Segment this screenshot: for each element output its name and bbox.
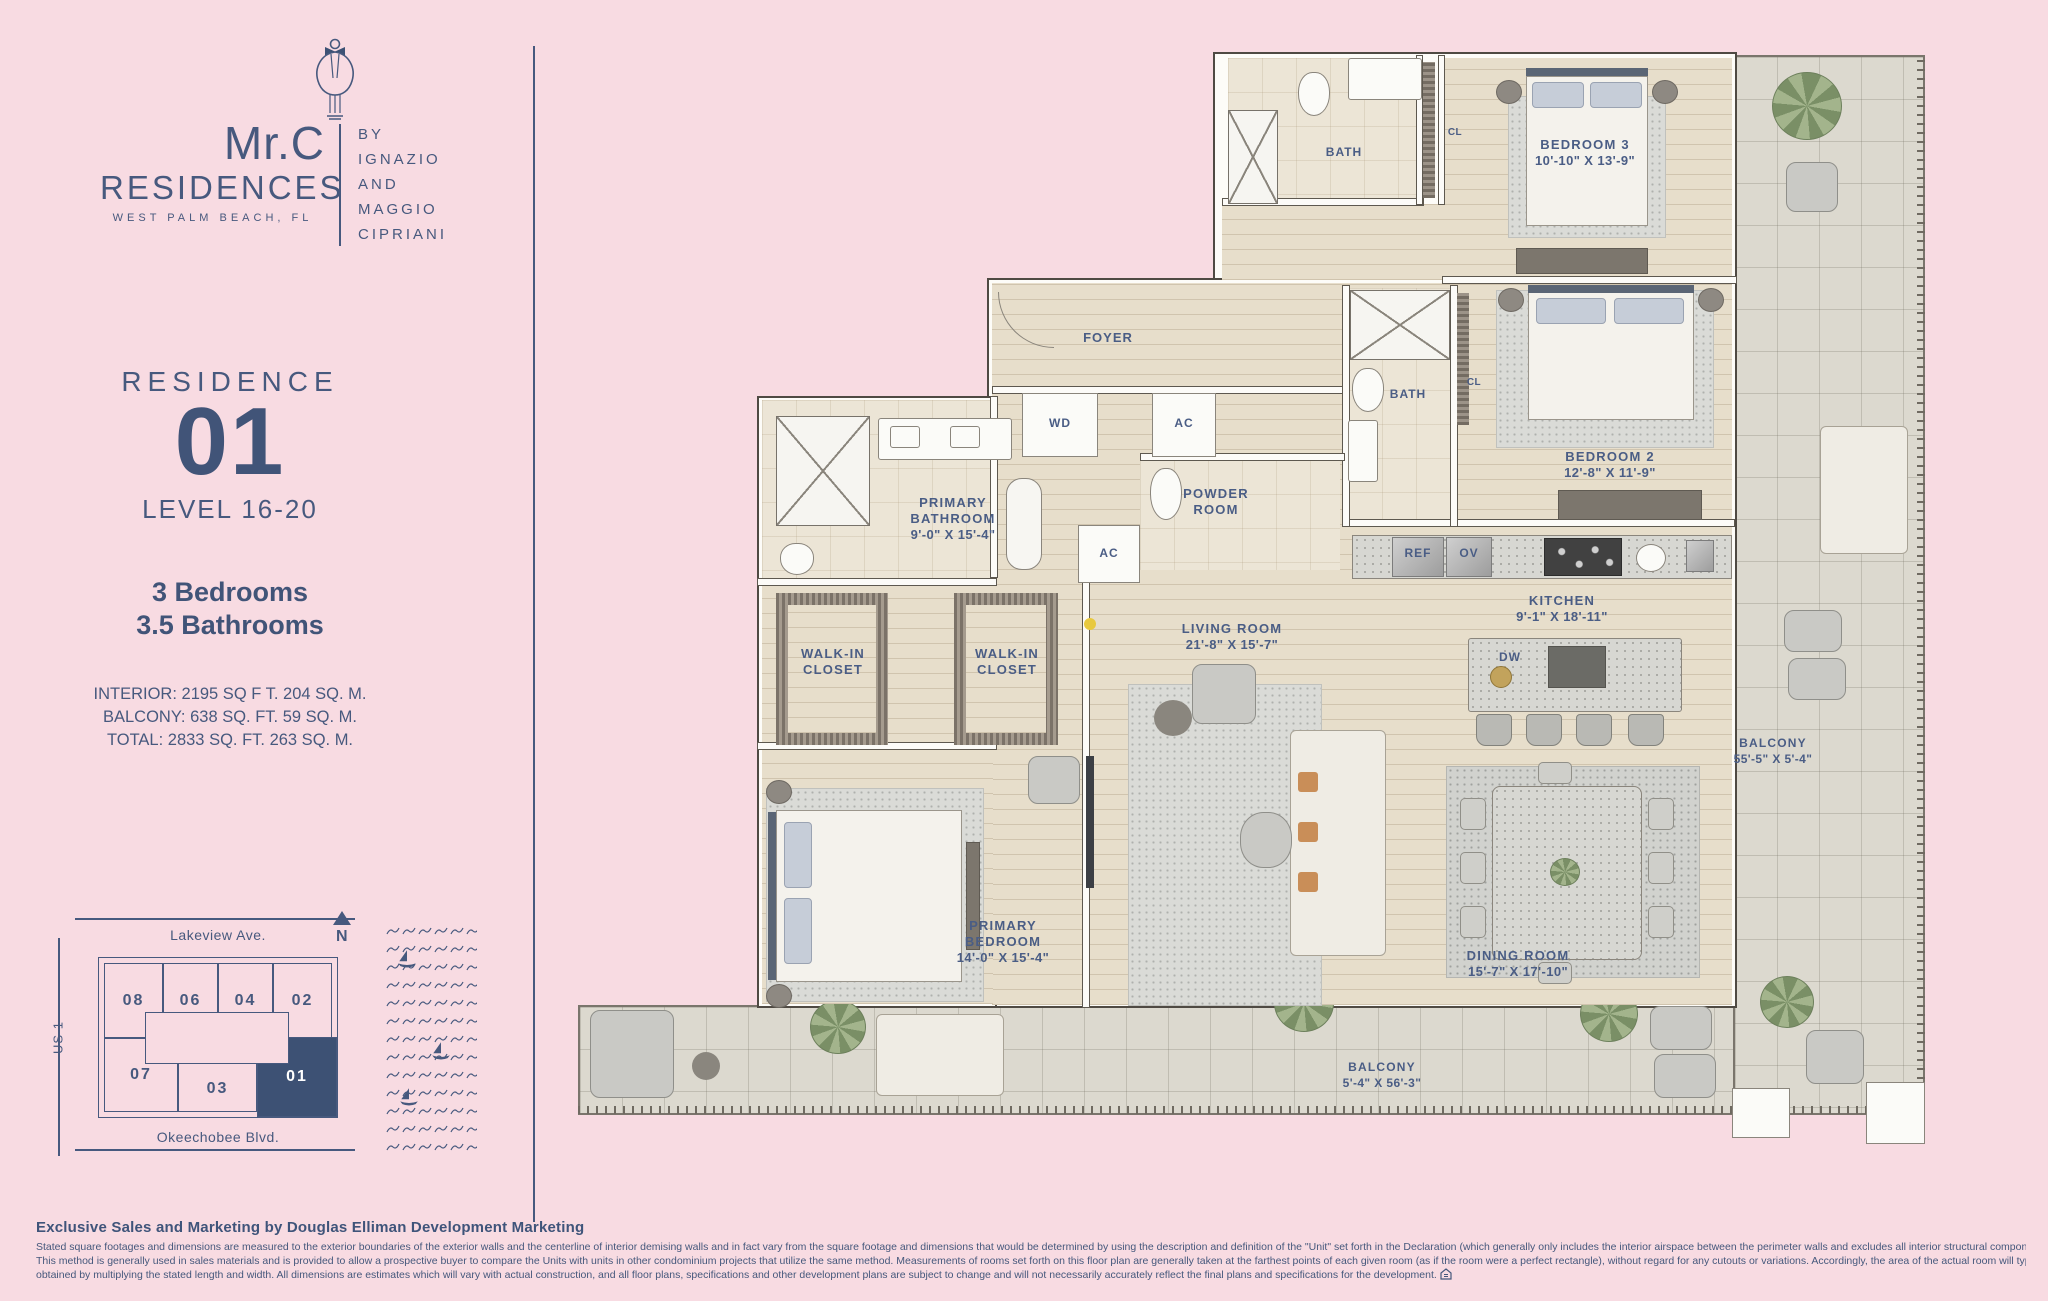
dresser	[1558, 490, 1702, 520]
primary-bedroom-dims: 14'-0" X 15'-4"	[923, 950, 1083, 966]
pillow	[784, 822, 812, 888]
primary-bedroom-label: PRIMARY	[923, 918, 1083, 934]
closet-label: CL	[1460, 377, 1488, 388]
living-room-dims: 21'-8" X 15'-7"	[1142, 637, 1322, 653]
disclaimer-line: obtained by multiplying the stated lengt…	[36, 1269, 1437, 1281]
appliance	[1686, 540, 1714, 572]
shower	[1228, 110, 1278, 204]
dining-chair	[1538, 762, 1572, 784]
pillow	[1536, 298, 1606, 324]
ac-label: AC	[1152, 416, 1216, 430]
primary-bathroom-label: BATHROOM	[873, 511, 1033, 527]
pillow	[784, 898, 812, 964]
equal-housing-icon	[1440, 1268, 1452, 1285]
balcony-railing	[1917, 55, 1925, 1115]
palm-plant-icon	[810, 1000, 866, 1054]
bath2-label: BATH	[1358, 387, 1458, 401]
nightstand	[766, 984, 792, 1008]
lounge-chair	[1784, 610, 1842, 652]
cushion	[1298, 872, 1318, 892]
balcony-railing	[578, 1106, 1925, 1114]
nightstand	[1652, 80, 1678, 104]
planter	[1866, 1082, 1925, 1144]
hall-floor	[1222, 204, 1445, 280]
balcony-right-dims: 55'-5" X 5'-4"	[1713, 751, 1833, 767]
toilet	[780, 543, 814, 575]
walk-in-closet-label: WALK-IN	[952, 646, 1062, 662]
lounge-chair	[1806, 1030, 1864, 1084]
vanity	[1348, 58, 1422, 100]
dining-chair	[1460, 852, 1486, 884]
headboard	[1528, 285, 1694, 293]
palm-plant-icon	[1772, 72, 1842, 140]
balcony-right-label: BALCONY	[1713, 735, 1833, 751]
tv-console	[1516, 248, 1648, 274]
footer-disclaimer: Stated square footages and dimensions ar…	[36, 1241, 2026, 1285]
sink	[890, 426, 920, 448]
primary-bedroom-label: BEDROOM	[923, 934, 1083, 950]
bedroom3-dims: 10'-10" X 13'-9"	[1495, 153, 1675, 169]
planter	[1732, 1088, 1790, 1138]
nightstand	[766, 780, 792, 804]
pillow	[1532, 82, 1584, 108]
dw-label: DW	[1485, 650, 1535, 664]
ref-label: REF	[1392, 546, 1444, 560]
nightstand	[1698, 288, 1724, 312]
powder-room-label: ROOM	[1156, 502, 1276, 518]
sofa	[1290, 730, 1386, 956]
bedroom3-label: BEDROOM 3	[1495, 137, 1675, 153]
outdoor-sofa	[876, 1014, 1004, 1096]
walk-in-closet-label: CLOSET	[952, 662, 1062, 678]
foyer-label: FOYER	[1048, 330, 1168, 345]
walk-in-closet-label: WALK-IN	[778, 646, 888, 662]
wd-label: WD	[1022, 416, 1098, 430]
closet-strip	[1423, 62, 1435, 198]
shower	[1350, 290, 1450, 360]
wall	[757, 578, 997, 586]
bar-stool	[1628, 714, 1664, 746]
floor-lamp	[1084, 618, 1096, 630]
powder-room-label: POWDER	[1156, 486, 1276, 502]
bath-label: BATH	[1294, 145, 1394, 159]
dining-room-dims: 15'-7" X 17'-10"	[1428, 964, 1608, 980]
island-faucet	[1490, 666, 1512, 688]
dining-chair	[1648, 798, 1674, 830]
footer-title: Exclusive Sales and Marketing by Douglas…	[36, 1219, 584, 1236]
nightstand	[1496, 80, 1522, 104]
vanity	[1348, 420, 1378, 482]
kitchen-label: KITCHEN	[1472, 593, 1652, 609]
closet-strip	[1457, 293, 1469, 425]
sink	[950, 426, 980, 448]
primary-bathroom-label: PRIMARY	[873, 495, 1033, 511]
disclaimer-line: Stated square footages and dimensions ar…	[36, 1241, 2026, 1253]
pillow	[1614, 298, 1684, 324]
dining-room-label: DINING ROOM	[1428, 948, 1608, 964]
balcony-bottom	[578, 1005, 1735, 1115]
pouf	[1154, 700, 1192, 736]
nightstand	[1498, 288, 1524, 312]
ov-label: OV	[1446, 546, 1492, 560]
lounge-chair	[1786, 162, 1838, 212]
kitchen-dims: 9'-1" X 18'-11"	[1472, 609, 1652, 625]
lounge-chair	[1654, 1054, 1716, 1098]
armchair	[1192, 664, 1256, 724]
balcony-bottom-label: BALCONY	[1322, 1059, 1442, 1075]
cushion	[1298, 772, 1318, 792]
dining-chair	[1648, 852, 1674, 884]
island-sink	[1548, 646, 1606, 688]
tv	[1086, 756, 1094, 888]
daybed	[1820, 426, 1908, 554]
toilet	[1298, 72, 1330, 116]
living-room-label: LIVING ROOM	[1142, 621, 1322, 637]
dining-chair	[1460, 798, 1486, 830]
walk-in-closet-label: CLOSET	[778, 662, 888, 678]
bedroom2-label: BEDROOM 2	[1520, 449, 1700, 465]
closet-label: CL	[1440, 127, 1470, 138]
floor-plan: BATH CL BEDROOM 3 10'-10" X 13'-9" FOYER…	[0, 0, 2048, 1301]
cushion	[1298, 822, 1318, 842]
kitchen-sink	[1636, 544, 1666, 572]
coffee-table	[1240, 812, 1292, 868]
headboard	[768, 812, 776, 980]
dining-chair	[1648, 906, 1674, 938]
wall	[1345, 519, 1735, 527]
wall	[1342, 285, 1350, 527]
pouf	[692, 1052, 720, 1080]
lounge-chair	[1650, 1006, 1712, 1050]
balcony-right	[1733, 55, 1925, 1115]
bar-stool	[1526, 714, 1562, 746]
wall	[1442, 276, 1737, 284]
shower	[776, 416, 870, 526]
bar-stool	[1576, 714, 1612, 746]
bar-stool	[1476, 714, 1512, 746]
disclaimer-line: This method is generally used in sales m…	[36, 1255, 2026, 1267]
bedroom2-dims: 12'-8" X 11'-9"	[1520, 465, 1700, 481]
centerpiece-plant-icon	[1550, 858, 1580, 886]
cooktop	[1544, 538, 1622, 576]
armchair	[1028, 756, 1080, 804]
lounge-chair	[1788, 658, 1846, 700]
palm-plant-icon	[1760, 976, 1814, 1028]
ac-label: AC	[1078, 546, 1140, 560]
pillow	[1590, 82, 1642, 108]
balcony-bottom-dims: 5'-4" X 56'-3"	[1322, 1075, 1442, 1091]
lounge-chair	[590, 1010, 674, 1098]
headboard	[1526, 68, 1648, 76]
dining-chair	[1460, 906, 1486, 938]
primary-bathroom-dims: 9'-0" X 15'-4"	[873, 527, 1033, 543]
